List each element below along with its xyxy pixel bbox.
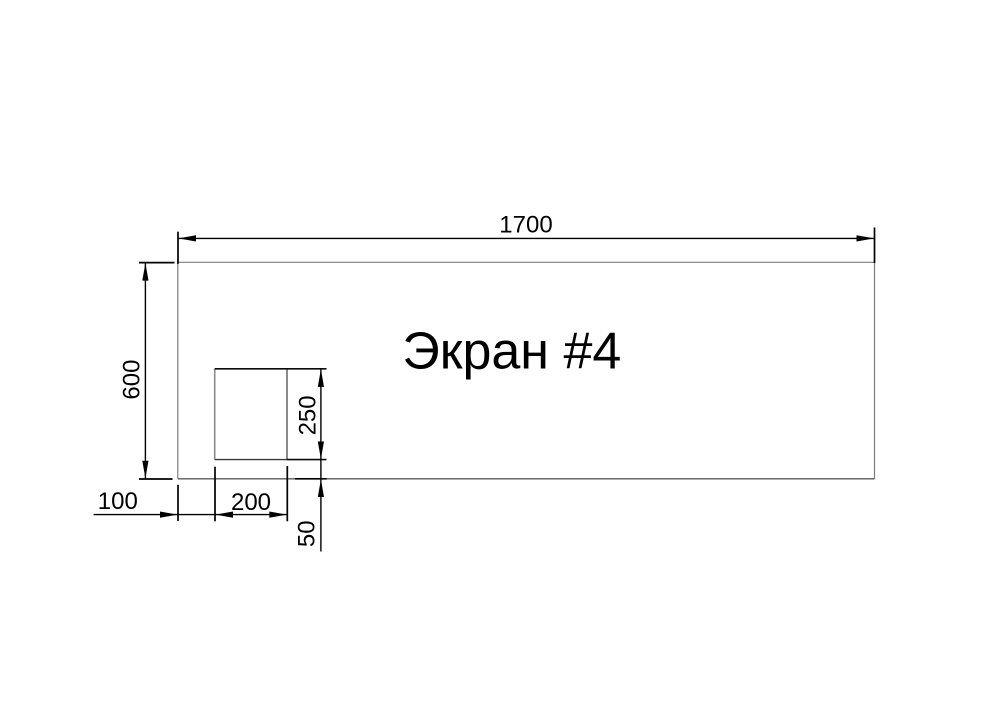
svg-text:600: 600	[119, 360, 146, 400]
svg-text:100: 100	[98, 488, 138, 515]
svg-text:1700: 1700	[499, 212, 552, 239]
svg-text:Экран #4: Экран #4	[402, 322, 621, 380]
svg-text:250: 250	[295, 395, 322, 435]
svg-text:200: 200	[231, 489, 271, 516]
svg-text:50: 50	[293, 520, 320, 547]
